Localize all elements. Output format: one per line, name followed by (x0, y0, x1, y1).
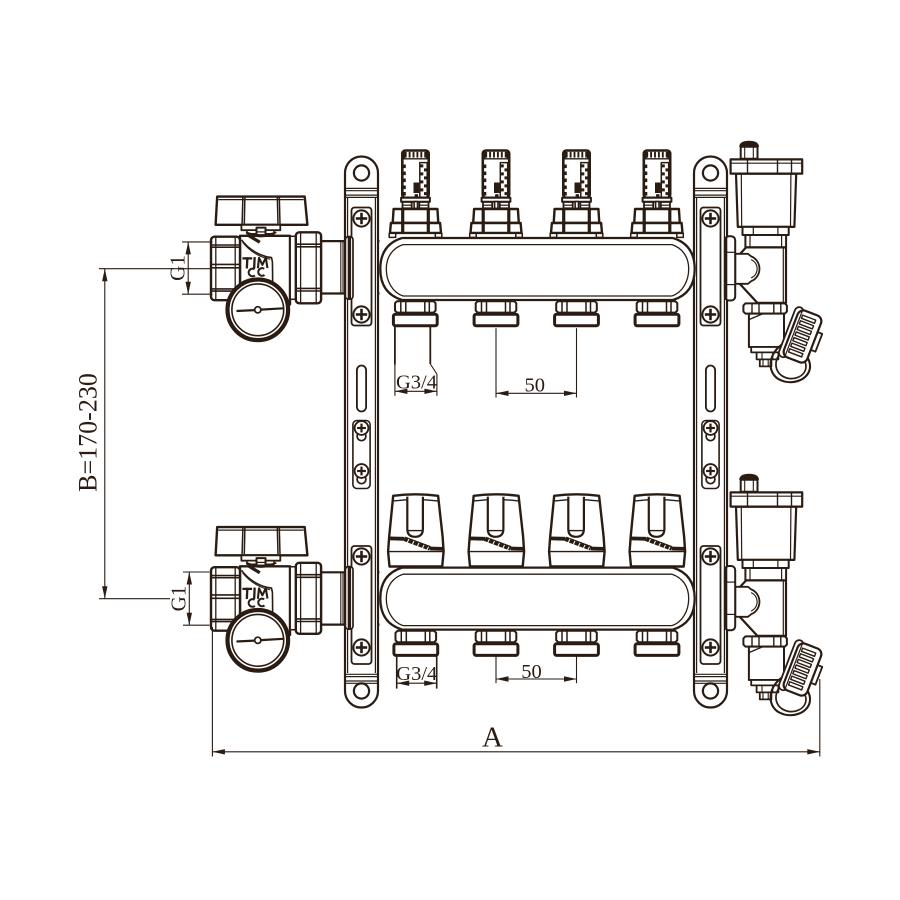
svg-text:G3/4: G3/4 (396, 372, 437, 394)
svg-text:50: 50 (521, 661, 542, 683)
svg-text:G1: G1 (167, 586, 191, 612)
svg-text:A: A (482, 722, 503, 754)
svg-text:G3/4: G3/4 (396, 663, 437, 685)
svg-text:G1: G1 (166, 255, 190, 281)
svg-text:B=170-230: B=170-230 (74, 373, 103, 492)
svg-text:50: 50 (525, 375, 546, 397)
